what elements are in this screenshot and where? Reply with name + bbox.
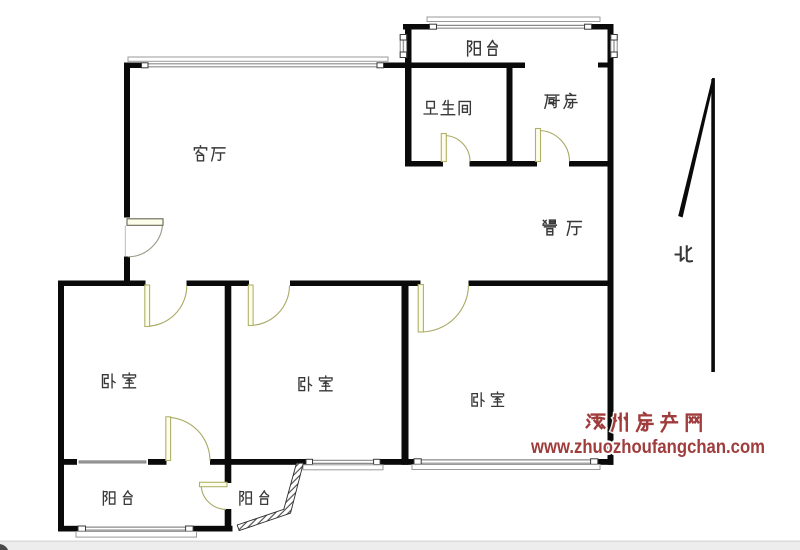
svg-text:www.zhuozhoufangchan.com: www.zhuozhoufangchan.com	[530, 436, 765, 458]
